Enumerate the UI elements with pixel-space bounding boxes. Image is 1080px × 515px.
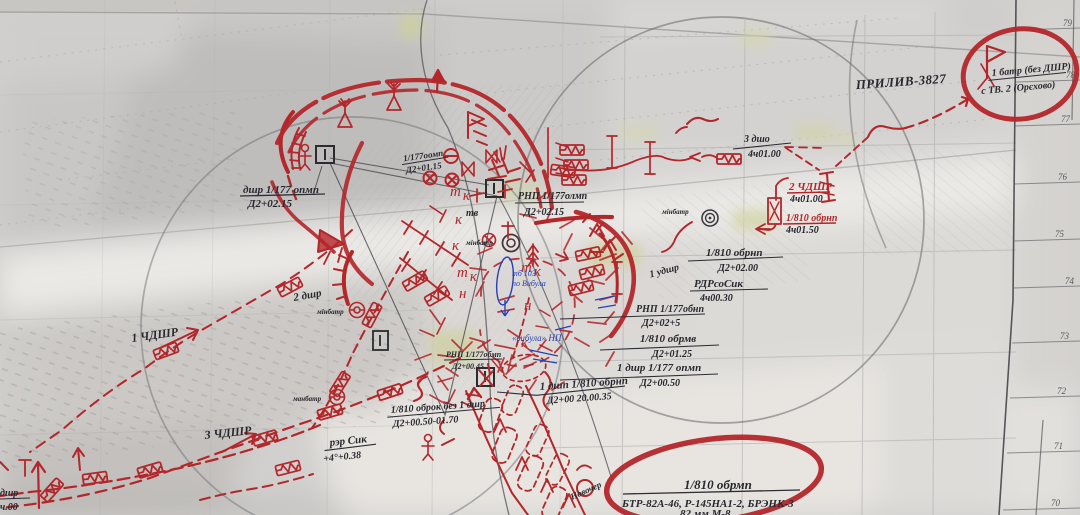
svg-text:РДРсоСик: РДРсоСик [694,278,743,290]
svg-text:74: 74 [1065,276,1075,286]
svg-text:манбатр: манбатр [292,395,322,403]
svg-text:73: 73 [1060,331,1070,341]
svg-text:77: 77 [1061,114,1071,124]
svg-text:тб 103: тб 103 [512,269,536,278]
svg-text:РНП 1/177олмп: РНП 1/177олмп [518,191,588,202]
svg-text:1/810 обрнп: 1/810 обрнп [706,247,763,259]
svg-text:1/810 обрнп: 1/810 обрнп [786,213,838,224]
svg-text:79: 79 [1063,18,1073,28]
svg-text:ч.00: ч.00 [0,502,18,513]
svg-text:Д2+02.15: Д2+02.15 [247,198,293,210]
svg-text:Д2+02.00: Д2+02.00 [717,263,758,274]
svg-text:мінбатр: мінбатр [316,308,344,316]
svg-text:по Вибула: по Вибула [512,279,546,288]
svg-text:РНП 1/177обнп: РНП 1/177обнп [636,304,704,315]
svg-text:Д2+01.25: Д2+01.25 [651,349,692,360]
svg-text:4ч01.50: 4ч01.50 [785,225,819,236]
svg-text:к: к [452,238,460,254]
svg-text:70: 70 [1051,498,1061,508]
svg-text:1 дшр 1/177 опмп: 1 дшр 1/177 опмп [617,362,701,374]
svg-text:4ч01.00: 4ч01.00 [747,149,781,160]
svg-text:Д2+00.45: Д2+00.45 [451,362,484,371]
svg-text:к: к [455,212,463,228]
svg-text:Д2+02.15: Д2+02.15 [523,207,564,218]
svg-text:4ч00.30: 4ч00.30 [699,293,733,304]
svg-text:4ч01.00: 4ч01.00 [789,194,823,205]
svg-text:71: 71 [1054,441,1063,451]
svg-text:Д2+02+5: Д2+02+5 [641,318,680,329]
svg-text:75: 75 [1055,229,1065,239]
svg-text:Д2+00.50: Д2+00.50 [639,378,680,389]
svg-text:82 мм М-8: 82 мм М-8 [680,508,731,515]
svg-text:76: 76 [1058,172,1068,182]
svg-text:н: н [459,286,466,302]
svg-text:«вибула» НП: «вибула» НП [512,333,562,343]
svg-text:72: 72 [1057,386,1067,396]
svg-text:3 дшо: 3 дшо [743,134,770,145]
svg-text:мінбатр: мінбатр [661,208,689,216]
svg-text:РНП 1/177обмп: РНП 1/177обмп [446,350,502,359]
svg-text:1/810 обрмп: 1/810 обрмп [684,477,752,492]
svg-text:тв: тв [466,208,479,219]
svg-text:дшр: дшр [0,488,18,499]
svg-text:мінбатр: мінбатр [465,239,493,247]
svg-text:2 ЧДШР: 2 ЧДШР [788,181,832,193]
svg-text:1/810 обрмв: 1/810 обрмв [640,333,696,345]
